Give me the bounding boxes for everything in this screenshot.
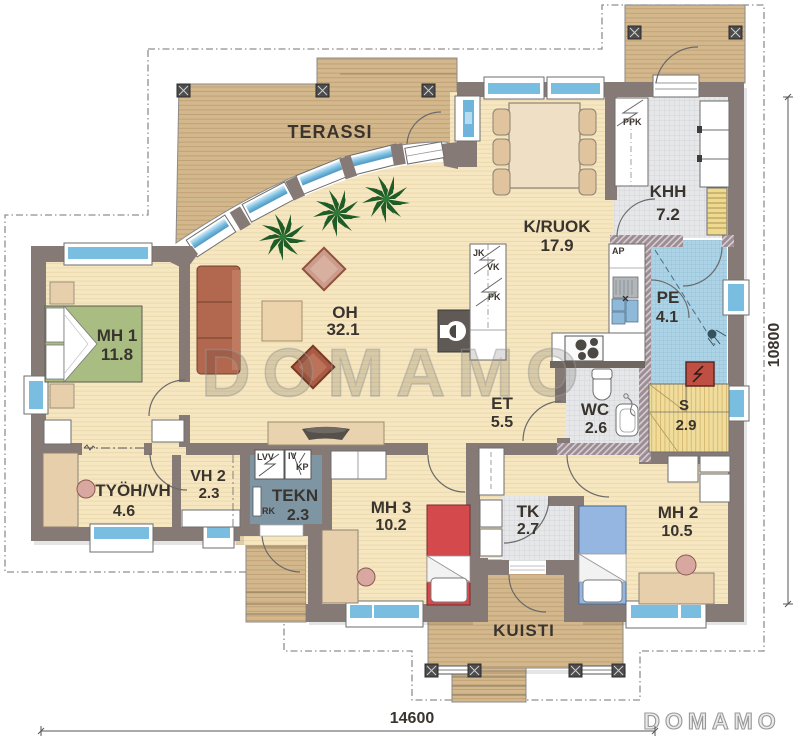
svg-text:TERASSI: TERASSI	[287, 122, 372, 142]
svg-text:2.9: 2.9	[676, 417, 697, 434]
svg-text:KUISTI: KUISTI	[493, 621, 555, 640]
svg-text:5.5: 5.5	[491, 414, 513, 431]
svg-text:7.2: 7.2	[656, 205, 680, 224]
svg-text:KP: KP	[296, 462, 309, 472]
svg-text:14600: 14600	[390, 710, 435, 727]
svg-text:MH 2: MH 2	[658, 503, 699, 522]
svg-text:10800: 10800	[766, 323, 783, 368]
svg-text:17.9: 17.9	[540, 236, 573, 255]
svg-text:TEKN: TEKN	[272, 486, 318, 505]
svg-text:2.3: 2.3	[199, 485, 220, 502]
svg-text:MH 3: MH 3	[371, 498, 412, 517]
svg-text:IV: IV	[288, 451, 297, 461]
svg-text:K/RUOK: K/RUOK	[523, 217, 591, 236]
svg-text:TYÖH/VH: TYÖH/VH	[95, 481, 171, 500]
svg-text:RK: RK	[262, 506, 275, 516]
svg-text:JK: JK	[473, 248, 485, 258]
svg-text:2.7: 2.7	[517, 521, 539, 538]
svg-text:2.6: 2.6	[585, 420, 607, 437]
svg-text:TK: TK	[517, 502, 540, 521]
svg-text:MH 1: MH 1	[97, 326, 138, 345]
svg-text:4.1: 4.1	[656, 309, 678, 326]
svg-text:VH 2: VH 2	[190, 468, 226, 485]
svg-text:S: S	[679, 397, 689, 414]
svg-text:KHH: KHH	[650, 182, 687, 201]
svg-text:10.5: 10.5	[661, 523, 692, 540]
svg-text:2.3: 2.3	[287, 507, 309, 524]
svg-text:DOMAMO: DOMAMO	[201, 335, 590, 411]
svg-text:AP: AP	[612, 246, 625, 256]
svg-text:VK: VK	[487, 262, 500, 272]
svg-text:DOMAMO: DOMAMO	[643, 708, 780, 734]
svg-text:10.2: 10.2	[375, 517, 406, 534]
svg-text:4.6: 4.6	[113, 503, 135, 520]
svg-text:11.8: 11.8	[101, 345, 133, 364]
svg-text:PPK: PPK	[623, 117, 642, 127]
svg-text:PK: PK	[488, 292, 501, 302]
svg-text:PE: PE	[657, 288, 680, 307]
svg-text:LVV: LVV	[257, 452, 274, 462]
